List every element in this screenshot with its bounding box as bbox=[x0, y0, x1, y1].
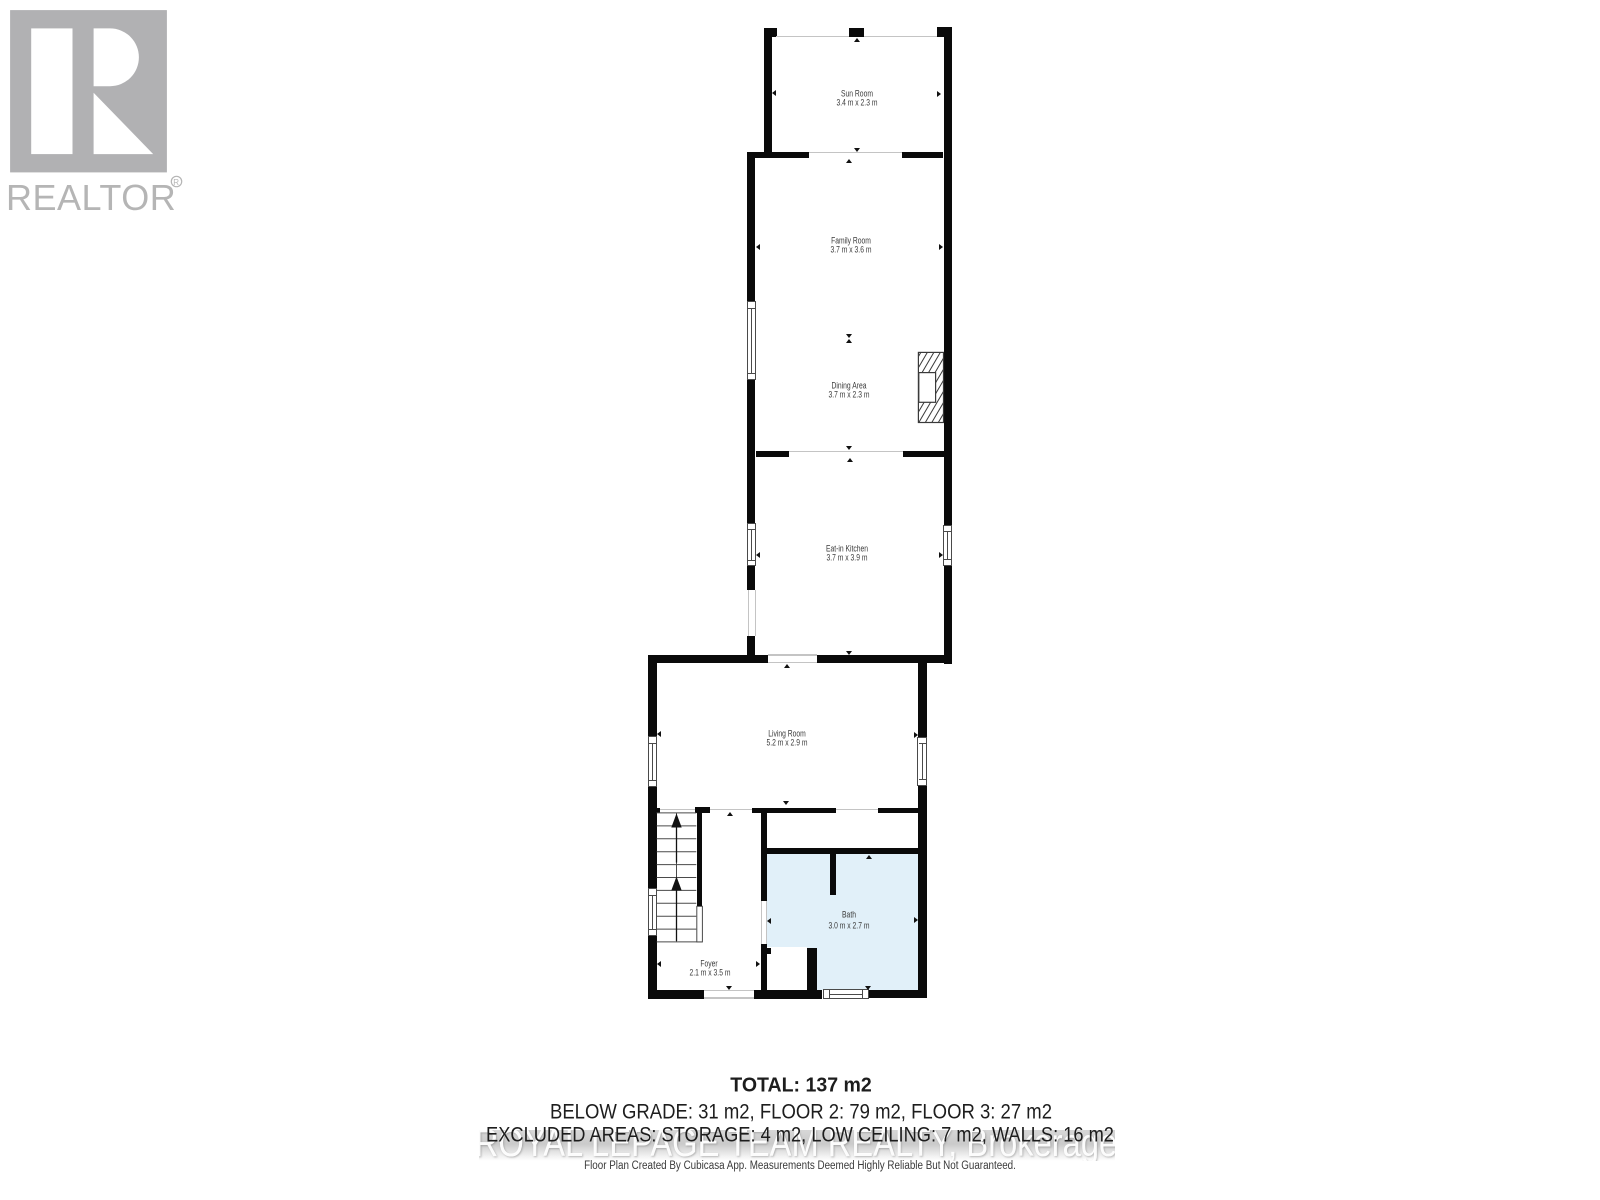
svg-text:REALTOR: REALTOR bbox=[6, 177, 176, 218]
svg-text:R: R bbox=[173, 178, 179, 187]
